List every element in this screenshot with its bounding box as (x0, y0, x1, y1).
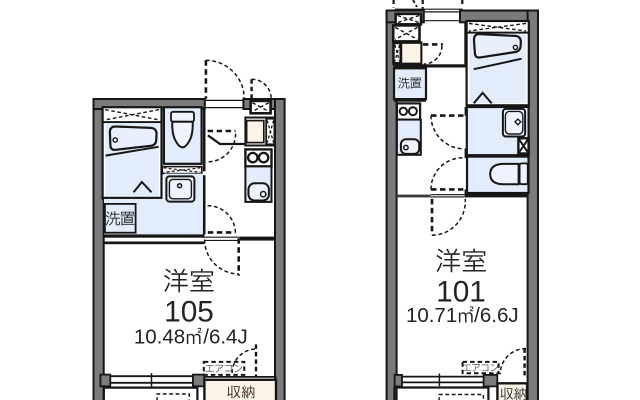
svg-text:10.71: 10.71 (406, 304, 457, 327)
svg-text:/6.4J: /6.4J (203, 326, 247, 349)
svg-text:10.48: 10.48 (134, 326, 185, 349)
svg-text:105: 105 (164, 295, 214, 328)
svg-text:/6.6J: /6.6J (474, 304, 518, 327)
